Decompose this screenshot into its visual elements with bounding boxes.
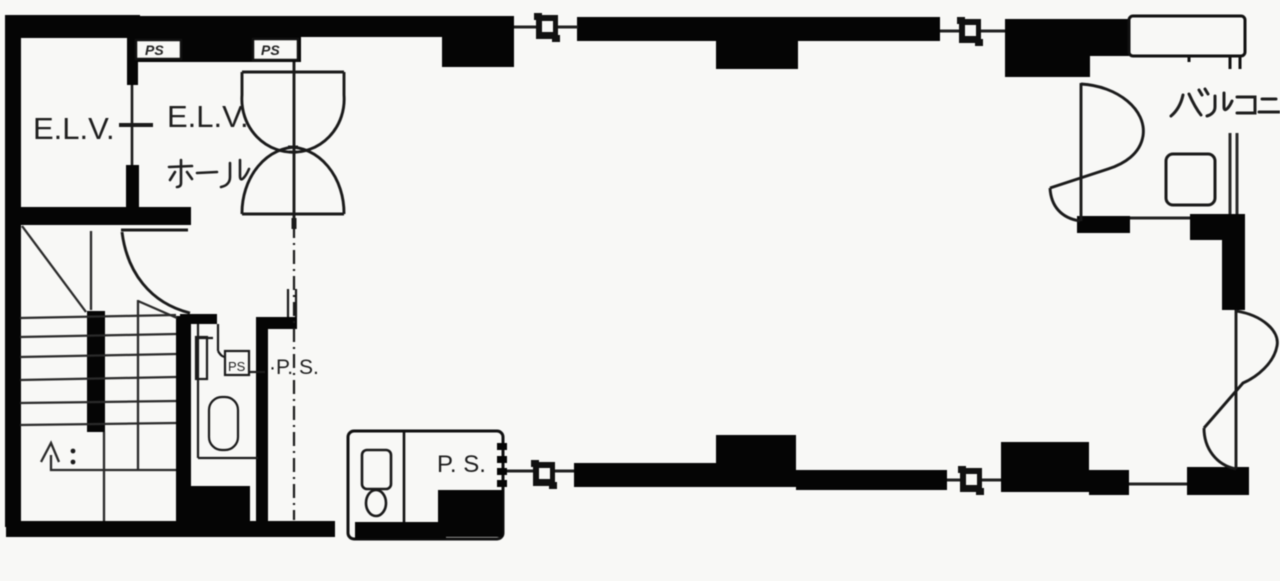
svg-text:E.L.V.: E.L.V. <box>167 99 249 134</box>
svg-text:P. S.: P. S. <box>437 451 486 478</box>
svg-text:PS: PS <box>228 359 246 374</box>
svg-text:E.L.V.: E.L.V. <box>33 111 115 146</box>
svg-text:PS: PS <box>145 42 164 58</box>
svg-text:PS: PS <box>261 42 280 58</box>
svg-text:·P. S.: ·P. S. <box>269 356 319 379</box>
